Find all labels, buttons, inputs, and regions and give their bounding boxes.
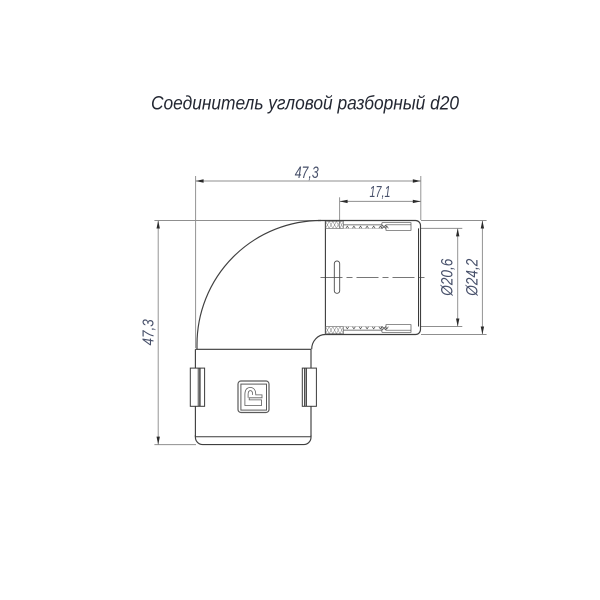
svg-text:Соединитель угловой разборный: Соединитель угловой разборный d20 <box>151 92 459 114</box>
svg-text:47,3: 47,3 <box>295 164 320 182</box>
svg-text:Ø24,2: Ø24,2 <box>463 259 481 297</box>
svg-text:Ø20,6: Ø20,6 <box>439 258 457 296</box>
svg-text:47,3: 47,3 <box>141 319 158 345</box>
svg-text:17,1: 17,1 <box>370 184 391 201</box>
